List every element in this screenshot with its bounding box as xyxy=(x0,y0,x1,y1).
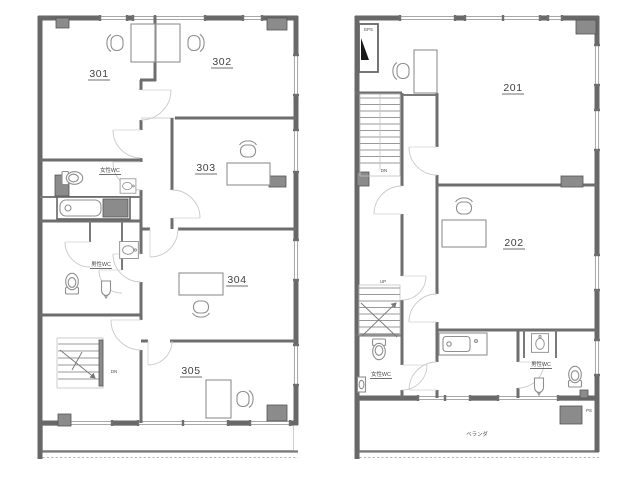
door-arc xyxy=(141,90,171,120)
window xyxy=(547,15,563,21)
desks-right xyxy=(393,50,486,247)
window xyxy=(417,395,471,401)
bathtub-icon xyxy=(57,197,130,219)
window xyxy=(99,15,128,21)
desk xyxy=(442,220,486,247)
staircase-icon-right-down: DN xyxy=(360,94,400,176)
door-arc xyxy=(65,242,90,267)
office-chair-icon xyxy=(188,35,204,52)
door-arc xyxy=(402,276,426,300)
room-label-305: 305 xyxy=(181,365,200,377)
urinal-icon xyxy=(102,281,111,298)
office-chair-icon xyxy=(237,391,253,408)
stairs-down-label-left: DN xyxy=(111,369,117,374)
desk xyxy=(179,273,223,295)
room-label-201: 201 xyxy=(503,82,522,94)
office-chair-icon xyxy=(456,198,473,214)
ps-label: PS xyxy=(586,408,592,413)
office-chair-icon xyxy=(107,35,123,52)
wc-male-label-right: 男性WC xyxy=(531,360,551,368)
sink-icon xyxy=(532,334,549,353)
door-arc xyxy=(374,186,402,214)
office-chair-icon xyxy=(193,301,210,317)
window xyxy=(242,15,263,21)
room-label-304: 304 xyxy=(227,274,246,286)
door-arc xyxy=(113,130,141,158)
room-label-302: 302 xyxy=(212,56,231,68)
door-arc xyxy=(172,190,200,218)
door-arc xyxy=(409,294,437,322)
window xyxy=(497,395,559,401)
sink-icon xyxy=(120,179,136,193)
window xyxy=(594,44,600,86)
floor-plan-canvas: 301 302 303 304 305 女性WC 男性WC DN xyxy=(0,0,640,480)
door-arc xyxy=(148,341,172,365)
room-label-202: 202 xyxy=(504,237,523,249)
toilet-icon xyxy=(569,366,582,387)
urinal-icon xyxy=(535,378,544,395)
window xyxy=(594,339,600,376)
window xyxy=(137,420,229,426)
hand-basin-icon xyxy=(358,377,366,392)
office-chair-icon xyxy=(393,63,409,80)
floor-plan-right: EPS PS DN UP xyxy=(355,15,600,459)
floor-plan-page: 301 302 303 304 305 女性WC 男性WC DN xyxy=(0,0,640,480)
toilet-icon xyxy=(66,273,79,294)
door-arc xyxy=(402,365,427,390)
window xyxy=(464,15,541,21)
stairs-down-label-right: DN xyxy=(381,168,387,173)
staircase-icon-left xyxy=(57,338,103,388)
window xyxy=(594,254,600,291)
balcony-left xyxy=(38,426,298,458)
room-label-303: 303 xyxy=(196,162,215,174)
toilet-icon xyxy=(373,339,386,360)
sink-icon xyxy=(120,242,139,259)
ps-shaft: PS xyxy=(560,406,592,424)
window xyxy=(293,129,299,173)
outer-walls-left xyxy=(38,16,298,459)
window xyxy=(399,15,456,21)
desk xyxy=(131,24,155,62)
kitchen-sink-icon xyxy=(439,333,487,355)
window xyxy=(293,54,299,96)
desk xyxy=(414,50,437,93)
room-label-301: 301 xyxy=(89,68,108,80)
door-arc xyxy=(409,147,437,175)
floor-plan-left: 301 302 303 304 305 女性WC 男性WC DN xyxy=(38,15,299,459)
door-arc xyxy=(409,362,437,390)
wc-female-label-left: 女性WC xyxy=(100,166,120,174)
office-chair-icon xyxy=(240,141,257,157)
desk xyxy=(156,24,180,62)
door-arc xyxy=(111,320,141,350)
desk xyxy=(206,380,231,418)
wc-male-label-left: 男性WC xyxy=(91,260,111,268)
desk xyxy=(227,163,270,185)
eps-label: EPS xyxy=(364,27,373,32)
doors-left xyxy=(65,90,200,365)
door-arc xyxy=(150,229,178,257)
window xyxy=(594,109,600,151)
stairs-up-label: UP xyxy=(380,279,386,284)
toilet-icon xyxy=(62,172,83,185)
eps-shaft: EPS xyxy=(359,24,378,72)
window xyxy=(293,239,299,281)
window xyxy=(293,344,299,386)
staircase-icon-right-up: UP xyxy=(359,279,400,337)
window xyxy=(132,15,206,21)
wc-female-label-right: 女性WC xyxy=(371,370,391,378)
veranda-label: ベランダ xyxy=(466,430,488,438)
